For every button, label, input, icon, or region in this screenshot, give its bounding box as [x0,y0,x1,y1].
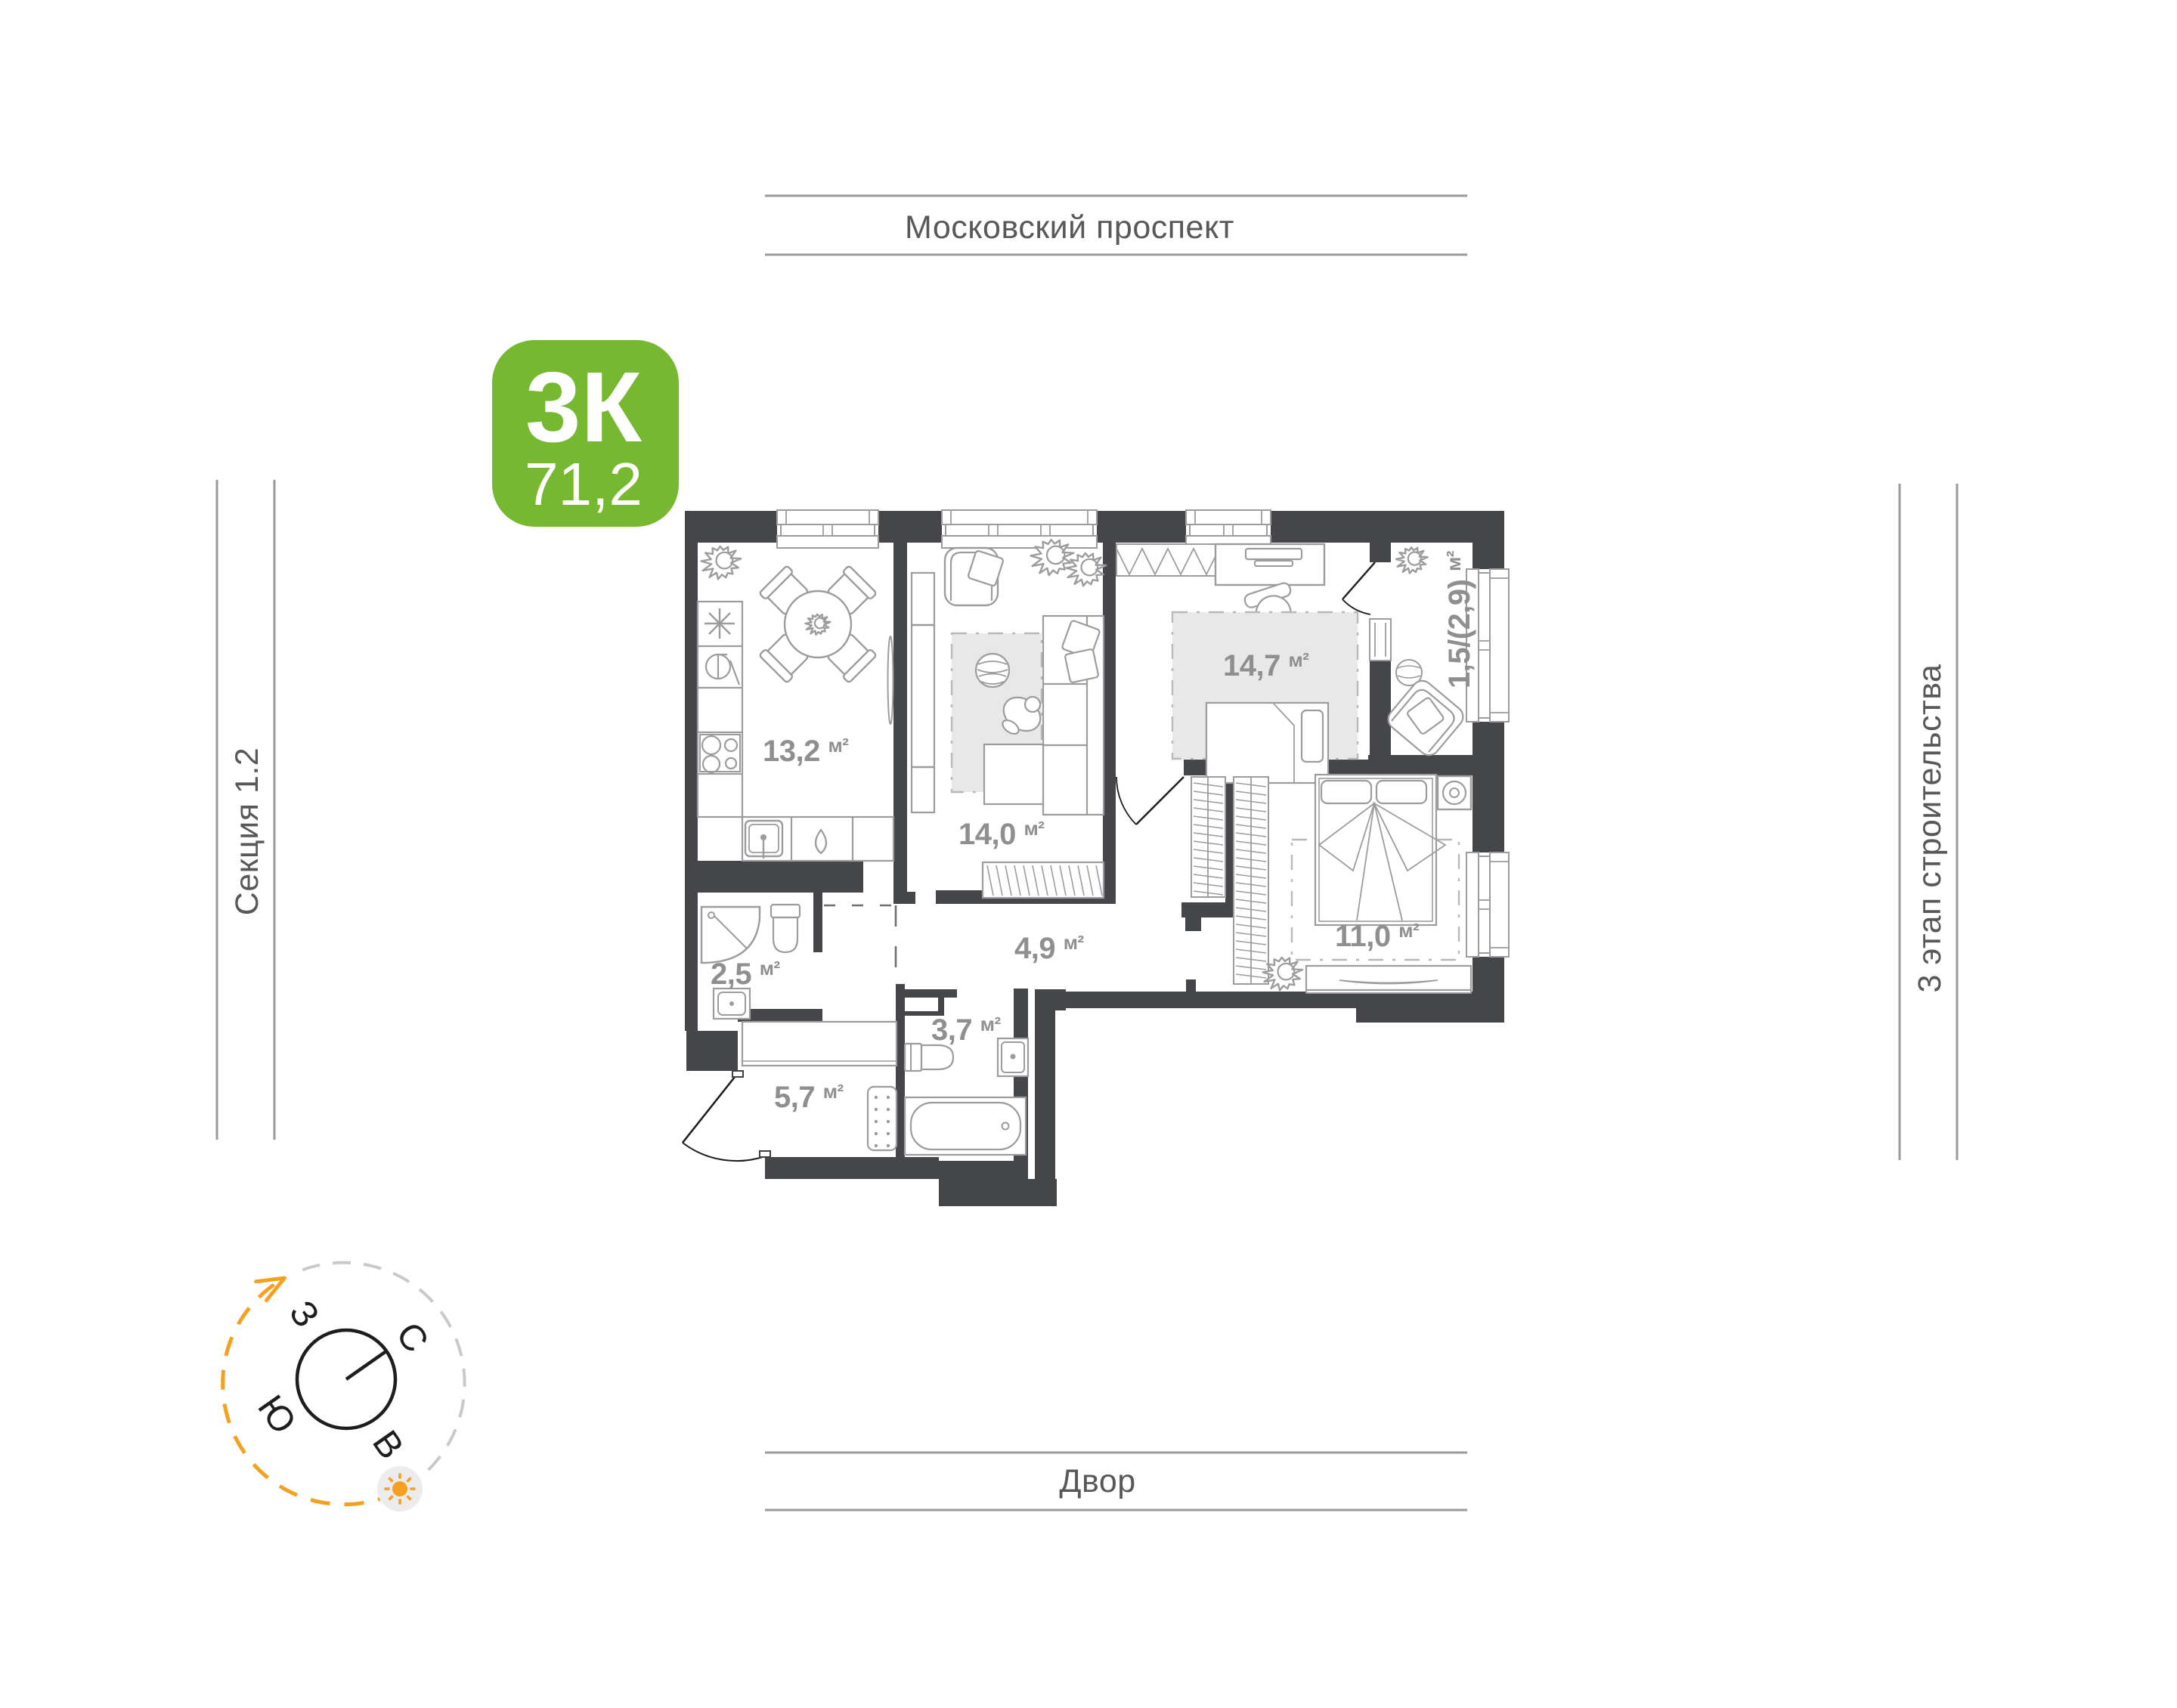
svg-text:71,2: 71,2 [525,450,643,518]
svg-text:Двор: Двор [1059,1463,1135,1499]
svg-text:3 этап строительства: 3 этап строительства [1912,664,1948,993]
svg-text:Секция 1.2: Секция 1.2 [229,747,265,915]
svg-text:3К: 3К [525,351,642,463]
svg-text:Московский проспект: Московский проспект [905,209,1234,246]
